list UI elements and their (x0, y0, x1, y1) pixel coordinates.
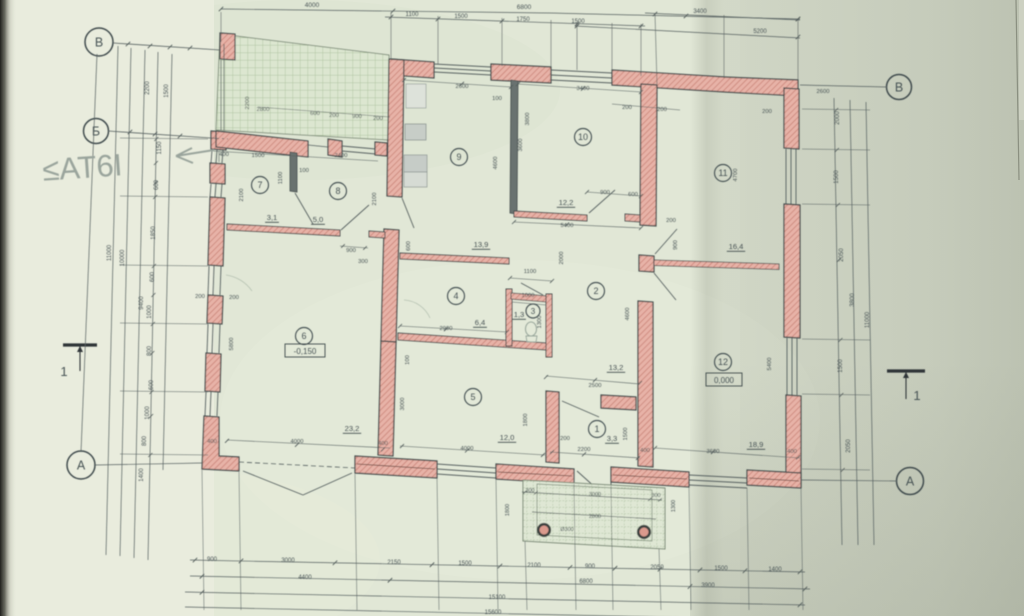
svg-text:600: 600 (406, 241, 412, 251)
svg-text:2050: 2050 (839, 248, 845, 262)
svg-text:1500: 1500 (623, 428, 629, 441)
svg-text:1800: 1800 (523, 414, 529, 427)
svg-text:5200: 5200 (753, 29, 767, 35)
svg-text:12: 12 (718, 357, 728, 367)
svg-text:1: 1 (594, 424, 599, 434)
svg-text:23,2: 23,2 (345, 424, 360, 433)
svg-text:2500: 2500 (589, 383, 602, 389)
svg-text:1300: 1300 (537, 316, 543, 329)
svg-text:1,3: 1,3 (514, 310, 525, 319)
svg-text:3,1: 3,1 (267, 213, 278, 222)
svg-text:4600: 4600 (493, 157, 499, 170)
svg-text:10000: 10000 (120, 249, 126, 266)
svg-text:1150: 1150 (157, 141, 163, 155)
svg-text:3,3: 3,3 (607, 434, 618, 443)
svg-text:900: 900 (673, 240, 679, 250)
svg-text:400: 400 (787, 449, 797, 455)
svg-text:400: 400 (640, 448, 650, 454)
svg-text:9400: 9400 (139, 296, 145, 310)
svg-text:4000: 4000 (305, 2, 320, 9)
svg-text:1100: 1100 (406, 12, 420, 18)
svg-text:6800: 6800 (579, 579, 593, 585)
svg-text:1000: 1000 (145, 406, 151, 420)
svg-text:3800: 3800 (850, 293, 856, 307)
svg-text:1500: 1500 (838, 359, 844, 373)
svg-text:2100: 2100 (372, 193, 378, 206)
svg-text:3000: 3000 (589, 492, 601, 498)
svg-text:1500: 1500 (454, 14, 468, 20)
svg-text:1000: 1000 (522, 293, 535, 299)
svg-text:2: 2 (593, 286, 598, 296)
svg-text:600: 600 (150, 271, 156, 282)
svg-text:100: 100 (492, 96, 502, 102)
svg-text:15600: 15600 (485, 610, 502, 616)
svg-text:400: 400 (378, 441, 388, 447)
svg-text:3800: 3800 (525, 113, 531, 126)
svg-text:6: 6 (301, 331, 306, 341)
svg-text:1400: 1400 (139, 468, 145, 482)
svg-text:2050: 2050 (846, 439, 852, 453)
svg-text:600: 600 (310, 111, 320, 117)
svg-text:1800: 1800 (505, 504, 511, 516)
svg-text:1: 1 (913, 388, 920, 403)
svg-text:13,2: 13,2 (609, 363, 624, 372)
svg-text:2400: 2400 (335, 153, 348, 159)
svg-text:12,2: 12,2 (559, 198, 574, 207)
svg-text:А: А (906, 475, 915, 489)
svg-text:800: 800 (147, 345, 153, 356)
svg-text:10: 10 (578, 132, 588, 142)
svg-text:200: 200 (195, 294, 205, 300)
svg-text:2800: 2800 (589, 514, 601, 520)
svg-text:1400: 1400 (768, 567, 782, 573)
svg-text:Ø300: Ø300 (560, 527, 573, 533)
svg-text:3: 3 (531, 307, 536, 316)
svg-text:6800: 6800 (517, 4, 532, 11)
svg-text:1000: 1000 (147, 305, 153, 319)
svg-text:900: 900 (207, 557, 218, 563)
svg-text:2600: 2600 (817, 89, 830, 95)
svg-text:3600: 3600 (518, 139, 524, 152)
svg-text:11000: 11000 (107, 244, 113, 261)
svg-text:1100: 1100 (524, 269, 536, 275)
svg-text:5400: 5400 (767, 358, 773, 371)
svg-text:5800: 5800 (229, 338, 235, 351)
svg-text:12,0: 12,0 (500, 433, 515, 442)
svg-text:6,4: 6,4 (475, 318, 486, 327)
svg-text:200: 200 (666, 218, 676, 224)
svg-text:-0,150: -0,150 (294, 347, 317, 356)
svg-text:В: В (95, 36, 103, 50)
svg-text:100: 100 (405, 355, 411, 365)
svg-text:2050: 2050 (650, 565, 664, 571)
svg-text:900: 900 (585, 564, 596, 570)
svg-text:200: 200 (373, 116, 383, 122)
svg-text:1500: 1500 (458, 561, 472, 567)
svg-text:1500: 1500 (834, 170, 840, 184)
svg-text:400: 400 (207, 439, 217, 445)
svg-text:4600: 4600 (625, 308, 631, 321)
svg-text:2200: 2200 (245, 97, 251, 110)
svg-text:0,000: 0,000 (714, 376, 735, 385)
svg-text:300: 300 (358, 259, 368, 265)
svg-text:200: 200 (762, 109, 772, 115)
svg-text:2200: 2200 (145, 81, 151, 95)
svg-text:≤АТ6Ι: ≤АТ6Ι (41, 147, 123, 187)
svg-text:1100: 1100 (278, 172, 284, 184)
svg-text:600: 600 (149, 379, 155, 390)
svg-text:11: 11 (718, 168, 727, 178)
svg-text:200: 200 (329, 113, 339, 119)
svg-text:800: 800 (142, 435, 148, 446)
svg-text:100: 100 (299, 168, 309, 174)
svg-text:18,9: 18,9 (749, 440, 764, 449)
svg-text:5: 5 (470, 392, 475, 402)
svg-text:5,0: 5,0 (313, 215, 324, 224)
svg-text:8: 8 (335, 186, 340, 196)
svg-text:200: 200 (622, 105, 632, 111)
svg-text:1850: 1850 (151, 226, 157, 240)
svg-text:300: 300 (525, 488, 534, 494)
svg-text:1300: 1300 (671, 500, 677, 512)
svg-text:3400: 3400 (693, 9, 707, 15)
svg-text:3000: 3000 (281, 558, 295, 564)
svg-text:1: 1 (60, 364, 67, 379)
svg-text:200: 200 (560, 436, 570, 442)
svg-text:400: 400 (219, 152, 229, 158)
svg-text:Б: Б (92, 125, 100, 139)
svg-text:1750: 1750 (516, 17, 530, 23)
svg-text:2100: 2100 (527, 563, 541, 569)
svg-text:11000: 11000 (865, 311, 871, 328)
svg-text:15100: 15100 (489, 595, 506, 601)
svg-text:600: 600 (154, 179, 160, 190)
svg-text:300: 300 (651, 493, 660, 499)
svg-text:2100: 2100 (239, 189, 245, 202)
svg-text:4400: 4400 (298, 575, 312, 581)
svg-text:900: 900 (346, 248, 356, 254)
svg-text:9: 9 (456, 152, 461, 162)
svg-text:2600: 2600 (456, 84, 469, 90)
svg-text:1500: 1500 (164, 84, 170, 98)
svg-text:200: 200 (229, 295, 239, 301)
svg-text:1500: 1500 (714, 566, 728, 572)
svg-text:13,9: 13,9 (474, 240, 489, 249)
svg-text:3900: 3900 (701, 583, 715, 589)
svg-text:2200: 2200 (578, 447, 591, 453)
svg-text:2000: 2000 (835, 111, 841, 125)
svg-text:2000: 2000 (559, 252, 565, 265)
svg-text:3000: 3000 (400, 398, 406, 411)
svg-text:4000: 4000 (291, 439, 304, 445)
svg-text:А: А (77, 459, 86, 473)
svg-text:4: 4 (453, 291, 458, 301)
svg-text:В: В (895, 81, 903, 95)
svg-text:4700: 4700 (733, 169, 739, 182)
svg-text:2150: 2150 (387, 560, 401, 566)
svg-text:7: 7 (257, 180, 262, 190)
svg-text:16,4: 16,4 (729, 242, 744, 251)
